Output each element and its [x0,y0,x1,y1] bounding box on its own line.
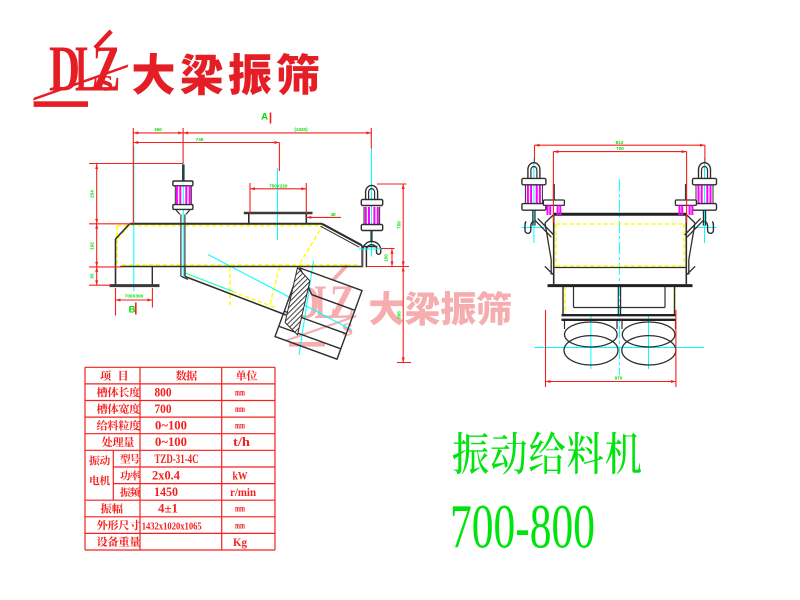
svg-text:r/min: r/min [230,485,256,499]
svg-text:970: 970 [615,376,623,381]
svg-text:mm: mm [235,421,245,431]
svg-text:360: 360 [154,127,162,132]
svg-text:700X300: 700X300 [125,294,144,299]
svg-text:254: 254 [90,190,95,198]
svg-text:2x0.4: 2x0.4 [152,468,180,483]
svg-text:(1020): (1020) [294,127,308,132]
svg-text:s: s [342,312,353,341]
svg-text:mm: mm [235,387,245,397]
svg-text:mm: mm [235,520,245,530]
svg-text:700: 700 [616,146,624,151]
svg-text:mm: mm [235,404,245,414]
svg-text:750: 750 [396,221,401,229]
svg-text:A: A [261,112,268,123]
svg-text:mm: mm [235,504,245,514]
svg-text:kW: kW [233,469,248,483]
svg-text:385: 385 [396,311,401,319]
svg-text:0~100: 0~100 [155,434,187,449]
svg-text:4±1: 4±1 [158,501,178,516]
svg-text:700-800: 700-800 [450,494,595,562]
svg-text:750X220: 750X220 [269,184,288,189]
svg-text:B: B [129,305,136,316]
svg-text:746: 746 [196,137,204,142]
svg-text:TZD-31-4C: TZD-31-4C [155,451,199,466]
svg-text:85: 85 [90,273,95,279]
svg-text:800: 800 [155,384,172,399]
svg-text:700: 700 [155,401,172,416]
svg-text:1432x1020x1065: 1432x1020x1065 [142,520,202,532]
svg-text:813: 813 [616,140,624,145]
svg-text:192: 192 [90,242,95,250]
svg-text:Kg: Kg [233,535,247,549]
svg-text:0~100: 0~100 [155,418,187,433]
svg-text:t/h: t/h [233,434,251,449]
svg-text:48: 48 [330,212,336,217]
svg-text:150: 150 [383,254,388,262]
svg-text:1450: 1450 [154,484,178,499]
